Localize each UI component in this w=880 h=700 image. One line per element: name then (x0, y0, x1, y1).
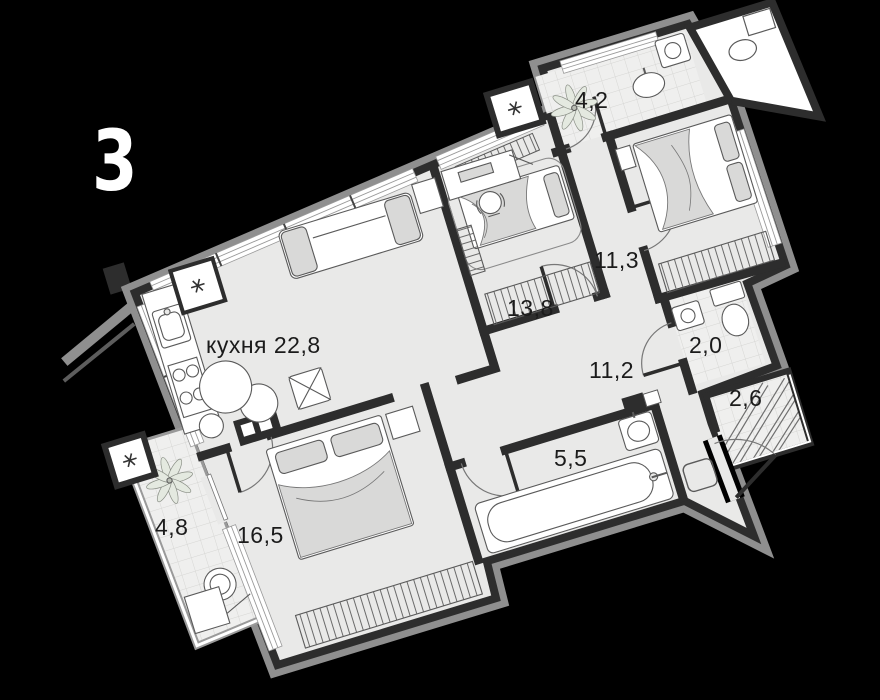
room-label-4-8: 4,8 (155, 514, 188, 540)
room-label-2-6: 2,6 (729, 385, 762, 411)
room-label-kitchen: кухня 22,8 (206, 332, 321, 358)
room-label-2-0: 2,0 (689, 332, 722, 358)
room-label-11-3: 11,3 (594, 247, 639, 273)
ac-shaft-balcony (105, 434, 156, 486)
ac-shaft-top (487, 81, 543, 135)
floor-plan: 3 кухня 22,8 13,8 11,3 4,2 2,0 2,6 11,2 … (0, 0, 880, 700)
room-label-5-5: 5,5 (554, 445, 587, 471)
floor-plan-screenshot: 3 кухня 22,8 13,8 11,3 4,2 2,0 2,6 11,2 … (0, 0, 880, 700)
room-label-11-2: 11,2 (589, 357, 634, 383)
room-label-16-5: 16,5 (237, 522, 284, 548)
room-label-4-2: 4,2 (575, 87, 608, 113)
room-label-13-8: 13,8 (507, 295, 554, 321)
plan-number-label: 3 (92, 112, 138, 210)
